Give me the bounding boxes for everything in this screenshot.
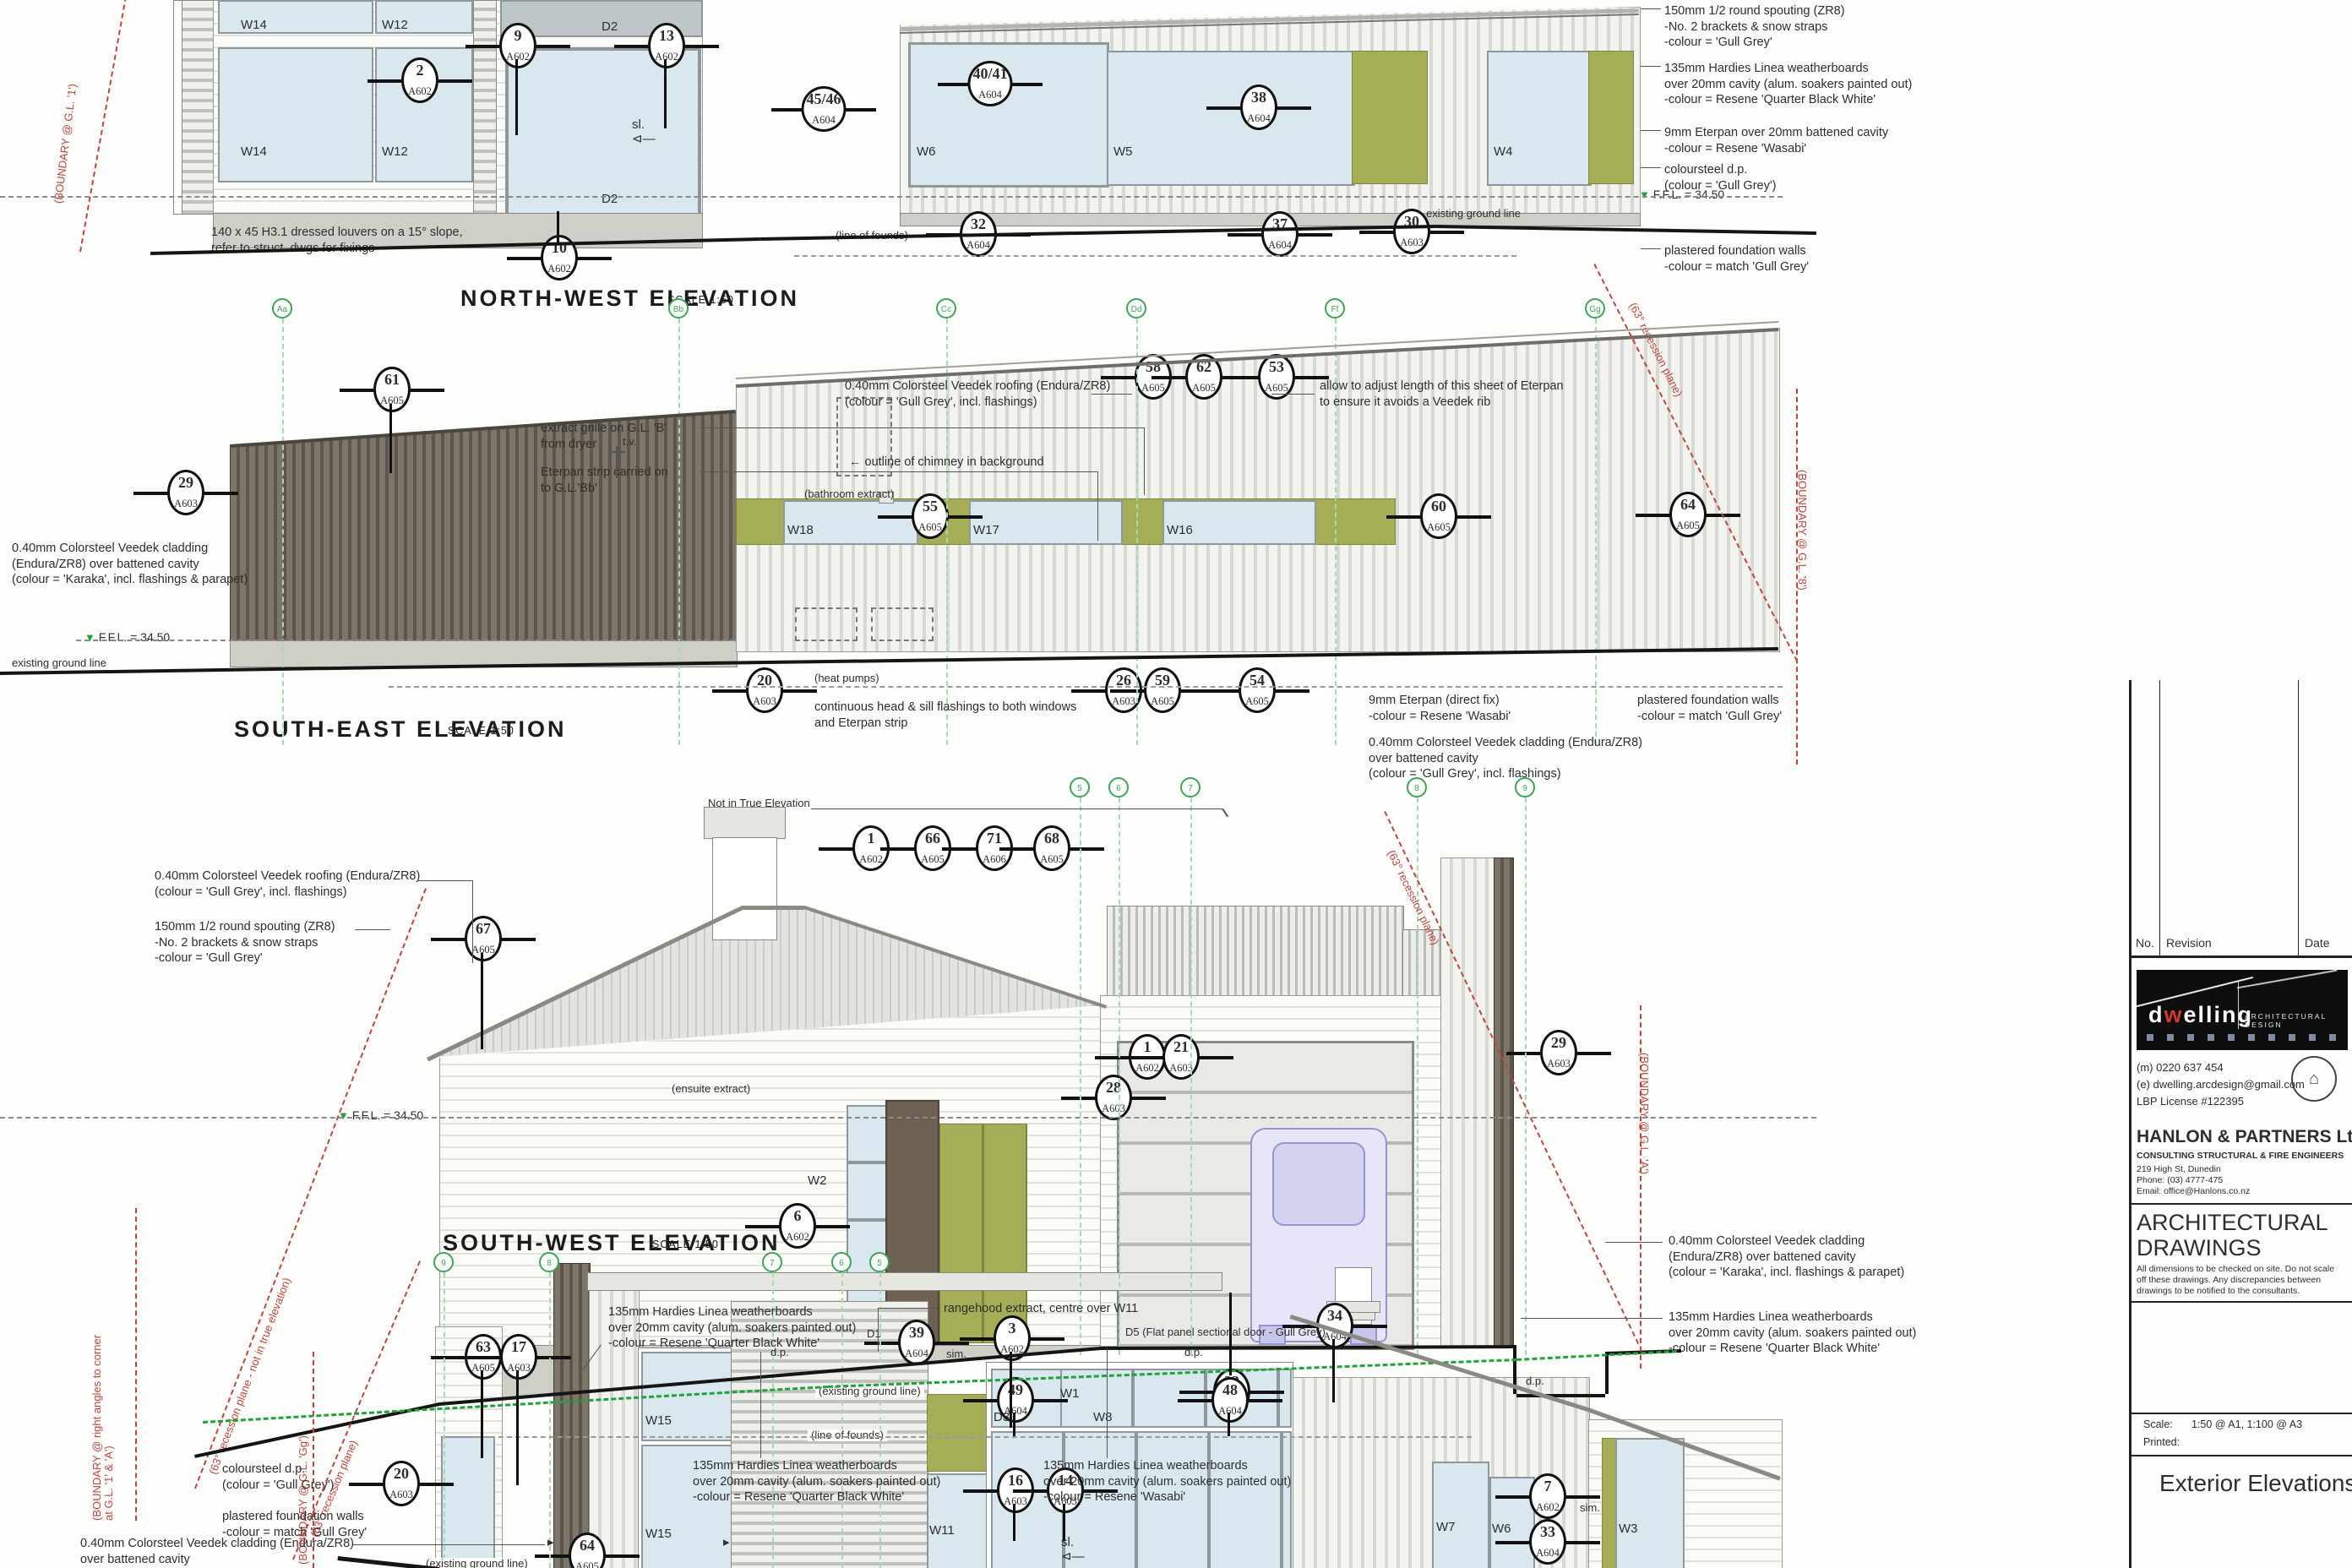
spec-note: 0.40mm Colorsteel Veedek cladding (Endur… bbox=[1369, 735, 1642, 782]
drawing-label: W18 bbox=[787, 524, 814, 538]
drawing-line bbox=[1641, 248, 1661, 249]
bubble-sheet-ref: A605 bbox=[917, 517, 944, 537]
drawing-label: W3 bbox=[1619, 1522, 1638, 1537]
drawing-line bbox=[1641, 66, 1661, 67]
bubble-sheet-ref: A605 bbox=[1190, 378, 1217, 398]
drawing-label: W4 bbox=[1494, 145, 1513, 160]
bubble-number: 33 bbox=[1534, 1522, 1561, 1543]
drawing-line bbox=[355, 929, 390, 930]
grid-line bbox=[1080, 798, 1081, 1355]
drawing-label: W17 bbox=[973, 524, 999, 538]
drawing-line bbox=[1144, 427, 1145, 495]
drawing-line bbox=[1092, 394, 1132, 395]
grid-line bbox=[678, 318, 680, 745]
bubble-number: 55 bbox=[917, 496, 944, 517]
logo-roofline2-icon bbox=[2237, 970, 2338, 988]
bubble-circle: 33A604 bbox=[1529, 1519, 1566, 1565]
bubble-circle: 29A603 bbox=[167, 470, 204, 515]
bubble-number: 34 bbox=[1321, 1305, 1348, 1326]
bubble-circle: 9A602 bbox=[499, 23, 536, 68]
drawing-line bbox=[515, 59, 518, 135]
bubble-circle: 40/41A604 bbox=[967, 61, 1012, 106]
detail-bubble: 2A602 bbox=[367, 57, 472, 105]
rev-col-line-2 bbox=[2298, 680, 2299, 955]
spec-note: 0.40mm Colorsteel Veedek cladding(Endura… bbox=[12, 541, 248, 588]
bubble-sheet-ref: A602 bbox=[653, 46, 680, 67]
drawing-label: W14 bbox=[241, 145, 267, 160]
drawing-line bbox=[1516, 1350, 1677, 1361]
drawing-line bbox=[1436, 225, 1816, 235]
scale-top-rule bbox=[2129, 1413, 2352, 1414]
drawing-line bbox=[1271, 394, 1315, 395]
detail-bubble: 6A602 bbox=[745, 1203, 850, 1250]
boundary-label: (BOUNDARY @ right angles to corner at G.… bbox=[91, 1335, 116, 1521]
bubble-circle: 6A602 bbox=[779, 1203, 816, 1249]
drawing-label: W14 bbox=[241, 19, 267, 33]
bubble-sheet-ref: A604 bbox=[1266, 235, 1293, 255]
detail-bubble: 68A605 bbox=[999, 825, 1104, 873]
detail-bubble: 28A603 bbox=[1061, 1075, 1166, 1122]
boundary-label: (63° recession plane) bbox=[1385, 848, 1441, 947]
drawing-line bbox=[76, 640, 735, 641]
grid-marker: 8 bbox=[539, 1252, 559, 1272]
logo-tagline: ARCHITECTURAL DESIGN bbox=[2245, 1012, 2348, 1029]
detail-bubble: 37A604 bbox=[1228, 211, 1332, 259]
bubble-sheet-ref: A604 bbox=[1534, 1543, 1561, 1563]
grid-marker: Gg bbox=[1585, 298, 1605, 318]
spec-note: rangehood extract, centre over W11 bbox=[944, 1301, 1138, 1317]
drawing-line bbox=[900, 8, 1639, 31]
drawing-label: W6 bbox=[917, 145, 936, 160]
drawing-label: D3 bbox=[994, 1411, 1010, 1425]
grid-line bbox=[879, 1272, 881, 1568]
sheet-title-top-rule bbox=[2129, 1455, 2352, 1456]
bubble-sheet-ref: A603 bbox=[505, 1358, 532, 1378]
bubble-circle: 7A602 bbox=[1529, 1473, 1566, 1519]
bubble-number: 48 bbox=[1217, 1380, 1244, 1401]
drawing-label: existing ground line bbox=[12, 657, 106, 669]
bubble-number: 38 bbox=[1245, 87, 1272, 108]
bubble-number: 53 bbox=[1263, 357, 1290, 378]
bubble-number: 54 bbox=[1244, 670, 1271, 691]
detail-bubble: 60A605 bbox=[1386, 493, 1491, 541]
bubble-number: 2 bbox=[406, 60, 433, 81]
drawing-line bbox=[1229, 1293, 1232, 1375]
bubble-circle: 67A605 bbox=[465, 916, 502, 961]
bubble-circle: 64A605 bbox=[569, 1533, 606, 1568]
logo-wordmark: dwelling bbox=[2148, 1002, 2253, 1028]
dwelling-logo: dwelling ARCHITECTURAL DESIGN bbox=[2137, 970, 2348, 1050]
bubble-number: 20 bbox=[751, 670, 778, 691]
drawing-line bbox=[1013, 1413, 1015, 1436]
drawing-line bbox=[1521, 1318, 1663, 1319]
bubble-circle: 29A603 bbox=[1540, 1030, 1577, 1075]
spec-note: 135mm Hardies Linea weatherboardsover 20… bbox=[1664, 61, 1912, 108]
drawing-label: (ensuite extract) bbox=[672, 1083, 750, 1095]
drawing-label: existing ground line bbox=[1426, 208, 1521, 220]
rev-col-no: No. bbox=[2136, 936, 2154, 950]
drawing-line bbox=[353, 1544, 545, 1545]
drawing-line bbox=[760, 1352, 761, 1458]
bubble-number: 64 bbox=[1674, 494, 1701, 515]
bubble-number: 29 bbox=[172, 472, 199, 493]
grid-marker: 7 bbox=[762, 1252, 782, 1272]
drawing-label: ▸ bbox=[547, 1536, 554, 1550]
spec-note: 150mm 1/2 round spouting (ZR8)-No. 2 bra… bbox=[155, 919, 335, 966]
detail-bubble: 61A605 bbox=[340, 367, 444, 414]
sheet-title: Exterior Elevations bbox=[2159, 1470, 2352, 1497]
bubble-circle: 55A605 bbox=[912, 493, 949, 539]
drawing-label: W16 bbox=[1167, 524, 1193, 538]
spec-note: allow to adjust length of this sheet of … bbox=[1320, 378, 1564, 410]
bubble-number: 17 bbox=[505, 1337, 532, 1358]
bubble-circle: 45/46A604 bbox=[801, 86, 846, 132]
bubble-sheet-ref: A603 bbox=[172, 493, 199, 514]
boundary-label: (BOUNDARY @ G.L. '1') bbox=[52, 83, 79, 204]
bubble-circle: 21A603 bbox=[1162, 1034, 1200, 1080]
bubble-number: 61 bbox=[378, 369, 406, 390]
spec-note: plastered foundation walls-colour = matc… bbox=[1664, 243, 1809, 275]
bubble-circle: 28A603 bbox=[1095, 1075, 1132, 1120]
bubble-number: 40/41 bbox=[972, 63, 1007, 84]
grid-marker: Ff bbox=[1325, 298, 1345, 318]
bubble-circle: 20A603 bbox=[383, 1461, 420, 1506]
drawing-line bbox=[1641, 167, 1661, 168]
drawing-line bbox=[389, 686, 1783, 688]
bubble-number: 32 bbox=[965, 214, 992, 235]
drawing-line bbox=[1640, 1005, 1641, 1369]
detail-bubble: 40/41A604 bbox=[938, 61, 1043, 108]
drawing-label: D2 bbox=[602, 20, 618, 35]
bubble-sheet-ref: A602 bbox=[504, 46, 531, 67]
bubble-sheet-ref: A604 bbox=[965, 235, 992, 255]
drawing-line bbox=[1013, 1504, 1015, 1541]
grid-marker: 7 bbox=[1180, 777, 1200, 798]
bubble-number: 9 bbox=[504, 25, 531, 46]
detail-bubble: 59A605 bbox=[1110, 667, 1215, 715]
spec-note: 9mm Eterpan over 20mm battened cavity-co… bbox=[1664, 125, 1888, 156]
drawing-label: sl. ⊲— bbox=[632, 118, 656, 146]
drawing-line bbox=[664, 59, 667, 128]
titleblock-left-border bbox=[2129, 680, 2131, 1568]
bubble-sheet-ref: A605 bbox=[1674, 515, 1701, 536]
bubble-circle: 30A603 bbox=[1393, 209, 1430, 254]
detail-bubble: 55A605 bbox=[878, 493, 983, 541]
bubble-circle: 64A605 bbox=[1669, 492, 1707, 537]
bubble-number: 29 bbox=[1545, 1032, 1572, 1053]
bubble-sheet-ref: A604 bbox=[1217, 1401, 1244, 1421]
bubble-sheet-ref: A603 bbox=[751, 691, 778, 711]
drawing-line bbox=[516, 1370, 519, 1485]
spec-note: 0.40mm Colorsteel Veedek roofing (Endura… bbox=[845, 378, 1110, 410]
bubble-sheet-ref: A605 bbox=[1149, 691, 1176, 711]
grid-marker: 5 bbox=[1070, 777, 1090, 798]
bubble-number: 3 bbox=[999, 1318, 1026, 1339]
bubble-sheet-ref: A602 bbox=[406, 81, 433, 101]
drawing-line bbox=[700, 471, 1098, 472]
bubble-sheet-ref: A604 bbox=[972, 84, 1007, 105]
bubble-number: 67 bbox=[470, 918, 497, 939]
ffl-level-label: ▼ F.F.L. = 34.50 bbox=[338, 1108, 423, 1122]
drawing-line bbox=[1107, 1348, 1108, 1458]
bubble-number: 68 bbox=[1038, 828, 1065, 849]
detail-bubble: 33A604 bbox=[1495, 1519, 1600, 1566]
drawing-line bbox=[0, 1117, 1816, 1119]
grid-line bbox=[549, 1272, 551, 1568]
bubble-circle: 13A602 bbox=[648, 23, 685, 68]
drawing-label: W15 bbox=[645, 1414, 672, 1429]
drawing-label: D2 bbox=[602, 193, 618, 207]
detail-bubble: 67A605 bbox=[431, 916, 536, 963]
drawing-line bbox=[1063, 1504, 1065, 1541]
contact-email: (e) dwelling.arcdesign@gmail.com bbox=[2137, 1078, 2305, 1091]
bubble-number: 59 bbox=[1149, 670, 1176, 691]
disclaimer-bottom-rule bbox=[2129, 1301, 2352, 1303]
contact-license: LBP License #122395 bbox=[2137, 1095, 2244, 1108]
drawing-label: W12 bbox=[382, 145, 408, 160]
drawing-label: W2 bbox=[808, 1174, 827, 1189]
drawing-label: W7 bbox=[1436, 1521, 1456, 1535]
grid-line bbox=[1119, 798, 1120, 1355]
bubble-number: 30 bbox=[1398, 211, 1425, 232]
drawing-label: Not in True Elevation bbox=[708, 798, 810, 809]
drawing-line bbox=[0, 196, 1783, 198]
bubble-sheet-ref: A603 bbox=[388, 1484, 415, 1505]
rev-col-date: Date bbox=[2305, 936, 2330, 950]
bubble-sheet-ref: A602 bbox=[784, 1227, 811, 1247]
sheet-heading-line1: ARCHITECTURAL bbox=[2137, 1210, 2328, 1236]
bubble-sheet-ref: A603 bbox=[1398, 232, 1425, 253]
detail-bubble: 9A602 bbox=[465, 23, 570, 70]
spec-note: 135mm Hardies Linea weatherboardsover 20… bbox=[693, 1458, 940, 1505]
bubble-circle: 2A602 bbox=[401, 57, 438, 103]
bubble-number: 64 bbox=[574, 1535, 601, 1556]
bubble-number: 13 bbox=[653, 25, 680, 46]
grid-marker: 6 bbox=[1108, 777, 1129, 798]
drawing-line bbox=[610, 451, 625, 453]
detail-bubble: 49A604 bbox=[963, 1377, 1068, 1424]
bubble-circle: 59A605 bbox=[1144, 667, 1181, 713]
drawing-label: (bathroom extract) bbox=[804, 488, 894, 500]
detail-bubble: 13A602 bbox=[614, 23, 719, 70]
detail-bubble: 29A603 bbox=[1506, 1030, 1611, 1077]
spec-note: 0.40mm Colorsteel Veedek roofing (Endura… bbox=[155, 868, 420, 900]
bubble-circle: 53A605 bbox=[1258, 354, 1295, 400]
drawing-line bbox=[878, 1308, 879, 1352]
drawing-line bbox=[473, 1436, 1472, 1438]
engineer-sub: CONSULTING STRUCTURAL & FIRE ENGINEERS bbox=[2137, 1151, 2344, 1161]
bubble-number: 6 bbox=[784, 1206, 811, 1227]
drawing-line bbox=[1605, 1242, 1663, 1243]
grid-marker: Aa bbox=[272, 298, 292, 318]
drawing-label: W11 bbox=[929, 1524, 955, 1538]
spec-note: plastered foundation walls-colour = matc… bbox=[1637, 693, 1782, 724]
bubble-circle: 39A604 bbox=[898, 1320, 935, 1365]
spec-note: 9mm Eterpan (direct fix)-colour = Resene… bbox=[1369, 693, 1511, 724]
grid-line bbox=[1525, 798, 1527, 1355]
drawing-line bbox=[582, 1344, 602, 1370]
spec-note: 135mm Hardies Linea weatherboardsover 20… bbox=[608, 1304, 856, 1352]
grid-line bbox=[1190, 798, 1192, 1355]
sheet-heading-line2: DRAWINGS bbox=[2137, 1235, 2262, 1261]
drawing-label: W15 bbox=[645, 1527, 672, 1542]
sheet-disclaimer: All dimensions to be checked on site. Do… bbox=[2137, 1264, 2346, 1297]
drawing-label: D1 bbox=[867, 1328, 881, 1340]
bubble-number: 39 bbox=[903, 1322, 930, 1343]
bubble-number: 20 bbox=[388, 1463, 415, 1484]
bubble-number: 45/46 bbox=[806, 89, 841, 110]
spec-note: 135mm Hardies Linea weatherboardsover 20… bbox=[1043, 1458, 1291, 1505]
engineer-name: HANLON & PARTNERS Ltd. bbox=[2137, 1127, 2352, 1147]
bubble-number: 37 bbox=[1266, 214, 1293, 235]
bubble-sheet-ref: A605 bbox=[1038, 849, 1065, 869]
drawing-label: W6 bbox=[1492, 1522, 1511, 1537]
detail-bubble: 20A603 bbox=[349, 1461, 454, 1508]
drawing-line bbox=[1010, 1352, 1012, 1428]
bubble-circle: 60A605 bbox=[1420, 493, 1457, 539]
engineer-phone: Phone: (03) 4777-475 bbox=[2137, 1175, 2223, 1185]
bubble-number: 10 bbox=[546, 237, 573, 259]
ffl-level-label: ▼ F.F.L. = 34.50 bbox=[1639, 188, 1724, 201]
ffl-level-label: ▼ F.F.L. = 34.50 bbox=[84, 630, 170, 644]
drawing-line bbox=[1516, 1394, 1605, 1397]
drawing-line bbox=[803, 906, 1107, 1009]
drawing-line bbox=[1384, 811, 1639, 1344]
grid-marker: Cc bbox=[936, 298, 956, 318]
drawing-line bbox=[472, 880, 473, 963]
spec-note: Eterpan strip carried onto G.L.'Bb' bbox=[541, 465, 668, 496]
rev-header-underline bbox=[2129, 955, 2352, 958]
grid-line bbox=[282, 318, 284, 745]
drawing-line bbox=[879, 1308, 938, 1309]
drawing-label: d.p. bbox=[1526, 1375, 1544, 1387]
rev-col-line-1 bbox=[2159, 680, 2160, 955]
bubble-circle: 61A605 bbox=[373, 367, 411, 412]
drawing-label: W5 bbox=[1113, 145, 1133, 160]
drawing-line bbox=[194, 888, 427, 1489]
bubble-circle: 54A605 bbox=[1239, 667, 1276, 713]
bubble-circle: 20A603 bbox=[746, 667, 783, 713]
heading-top-rule bbox=[2129, 1203, 2352, 1205]
spec-note: colo​ursteel d.p.(colour = 'Gull Grey') bbox=[222, 1462, 334, 1493]
drawing-line bbox=[1641, 8, 1661, 9]
grid-marker: 6 bbox=[831, 1252, 852, 1272]
scale-label: Scale: bbox=[2143, 1418, 2173, 1430]
spec-note: ← outline of chimney in background bbox=[849, 455, 1044, 471]
drawing-line bbox=[389, 647, 1778, 669]
drawing-line bbox=[794, 255, 1516, 257]
drawing-line bbox=[1796, 389, 1798, 765]
detail-bubble: 20A603 bbox=[712, 667, 817, 715]
grid-line bbox=[1136, 318, 1138, 745]
bubble-circle: 38A604 bbox=[1240, 84, 1277, 130]
drawing-line bbox=[1332, 1339, 1335, 1402]
bubble-sheet-ref: A605 bbox=[470, 939, 497, 960]
logo-squares bbox=[2147, 1034, 2338, 1041]
spec-note: continuous head & sill flashings to both… bbox=[814, 700, 1076, 731]
drawing-label: sim. bbox=[1580, 1502, 1600, 1514]
drawing-line bbox=[1605, 1352, 1609, 1394]
detail-bubble: 29A603 bbox=[133, 470, 238, 517]
bubble-sheet-ref: A603 bbox=[1545, 1053, 1572, 1074]
drawing-label: (heat pumps) bbox=[814, 672, 879, 684]
drawing-line bbox=[1097, 471, 1098, 541]
spec-note: extract grille on G.L. 'B'from dryer bbox=[541, 421, 667, 452]
drawing-line bbox=[1641, 130, 1661, 131]
scale-value: 1:50 @ A1, 1:100 @ A3 bbox=[2191, 1418, 2302, 1430]
drawing-label: W8 bbox=[1093, 1411, 1113, 1425]
drawing-sheet: NORTH-WEST ELEVATION SCALE 1:50 SOUTH-EA… bbox=[0, 0, 2352, 1568]
drawing-label: W1 bbox=[1060, 1387, 1080, 1402]
drawing-line bbox=[481, 953, 483, 1049]
drawing-line bbox=[742, 906, 804, 910]
bubble-sheet-ref: A604 bbox=[1245, 108, 1272, 128]
detail-bubble: 48A604 bbox=[1178, 1377, 1282, 1424]
drawing-line bbox=[135, 1208, 137, 1521]
bubble-sheet-ref: A605 bbox=[1263, 378, 1290, 398]
bubble-number: 7 bbox=[1534, 1476, 1561, 1497]
bubble-circle: 17A603 bbox=[500, 1334, 537, 1380]
drawing-line bbox=[1228, 1413, 1230, 1436]
drawing-line bbox=[418, 880, 473, 881]
bubble-number: 60 bbox=[1425, 496, 1452, 517]
bubble-sheet-ref: A605 bbox=[1244, 691, 1271, 711]
bubble-sheet-ref: A604 bbox=[806, 110, 841, 130]
logo-accent-letter: w bbox=[2164, 1002, 2184, 1027]
bubble-sheet-ref: A605 bbox=[1425, 517, 1452, 537]
bubble-sheet-ref: A605 bbox=[378, 390, 406, 411]
drawing-label: D5 (Flat panel sectional door - Gull Gre… bbox=[1125, 1326, 1326, 1338]
printed-label: Printed: bbox=[2143, 1436, 2180, 1448]
drawing-line bbox=[313, 1352, 314, 1568]
spec-note: 135mm Hardies Linea weatherboardsover 20… bbox=[1669, 1309, 1916, 1357]
grid-line bbox=[1595, 318, 1597, 745]
drawing-line bbox=[1587, 1407, 1781, 1481]
drawing-line bbox=[700, 427, 1145, 428]
drawing-line bbox=[557, 211, 559, 245]
detail-bubble: 38A604 bbox=[1206, 84, 1311, 132]
grid-marker: 9 bbox=[433, 1252, 454, 1272]
bubble-sheet-ref: A605 bbox=[574, 1556, 601, 1568]
drawing-line bbox=[1222, 808, 1228, 817]
grid-line bbox=[444, 1272, 445, 1568]
spec-note: 150mm 1/2 round spouting (ZR8)-No. 2 bra… bbox=[1664, 3, 1845, 51]
drawing-line bbox=[389, 404, 392, 473]
drawing-label: W12 bbox=[382, 19, 408, 33]
bubble-sheet-ref: A602 bbox=[1534, 1497, 1561, 1517]
drawing-line bbox=[79, 0, 127, 252]
grid-marker: Dd bbox=[1126, 298, 1146, 318]
bubble-number: 28 bbox=[1100, 1077, 1127, 1098]
annotation-layer: 2A6029A60213A60210A60245/46A60440/41A604… bbox=[0, 0, 2352, 1568]
detail-bubble: 64A605 bbox=[1636, 492, 1740, 539]
drawing-label: ▸ bbox=[723, 1536, 730, 1550]
bubble-sheet-ref: A603 bbox=[1100, 1098, 1127, 1119]
engineer-email: Email: office@Hanlons.co.nz bbox=[2137, 1186, 2250, 1196]
drawing-line bbox=[811, 808, 1223, 809]
detail-bubble: 54A605 bbox=[1205, 667, 1309, 715]
bubble-circle: 68A605 bbox=[1033, 825, 1070, 871]
bubble-circle: 48A604 bbox=[1211, 1377, 1249, 1423]
contact-mobile: (m) 0220 637 454 bbox=[2137, 1061, 2224, 1074]
detail-bubble: 45/46A604 bbox=[771, 86, 876, 133]
engineer-address: 219 High St, Dunedin bbox=[2137, 1164, 2221, 1174]
bubble-circle: 37A604 bbox=[1261, 211, 1298, 257]
bubble-number: 49 bbox=[1002, 1380, 1029, 1401]
bubble-sheet-ref: A602 bbox=[546, 259, 573, 279]
rev-col-revision: Revision bbox=[2166, 936, 2212, 950]
grid-marker: Bb bbox=[668, 298, 689, 318]
